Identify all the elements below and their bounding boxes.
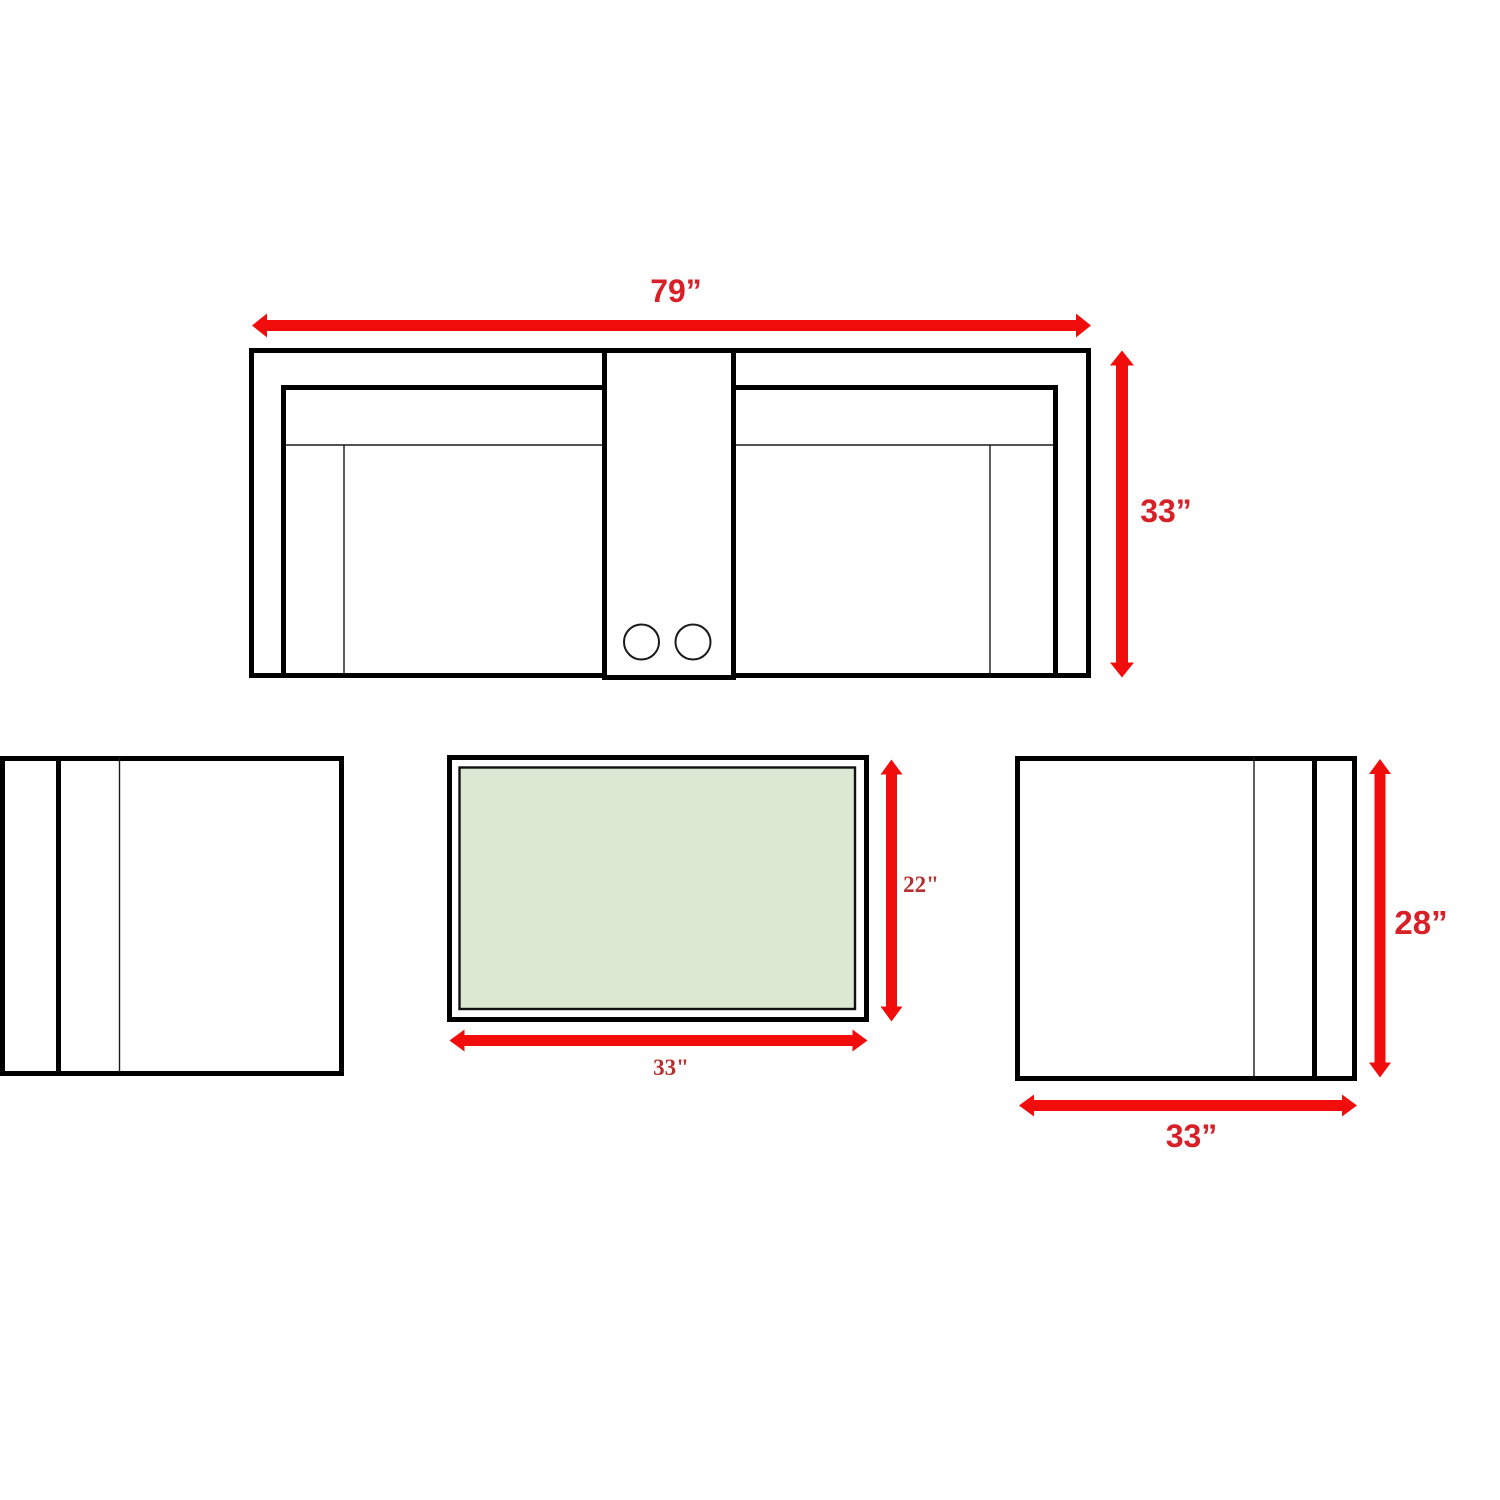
- svg-text:33”: 33”: [1166, 1118, 1218, 1154]
- svg-text:28”: 28”: [1394, 904, 1447, 941]
- svg-text:22": 22": [903, 872, 939, 897]
- svg-text:33": 33": [653, 1055, 689, 1080]
- svg-text:79”: 79”: [650, 273, 702, 309]
- svg-text:33”: 33”: [1140, 493, 1192, 529]
